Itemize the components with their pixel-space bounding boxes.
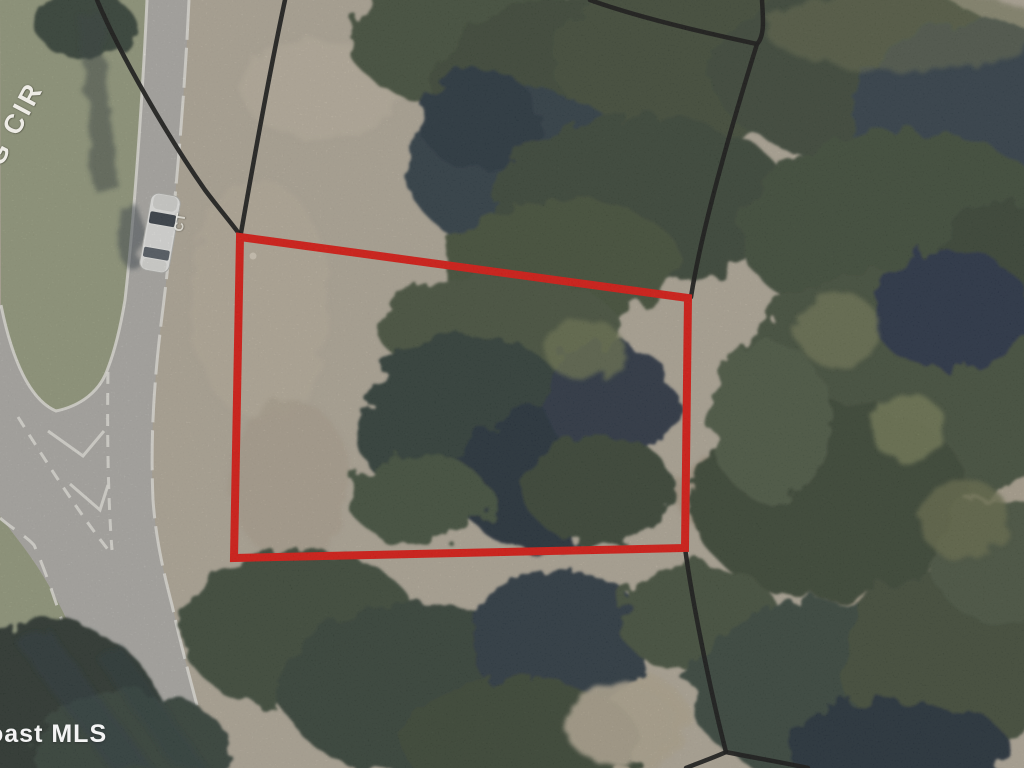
aerial-photo [0,0,1024,768]
listing-photo-aerial-map[interactable]: G CIR CT oast MLS [0,0,1024,768]
photo-grain-light [0,0,1024,768]
mls-watermark: oast MLS [0,720,107,749]
